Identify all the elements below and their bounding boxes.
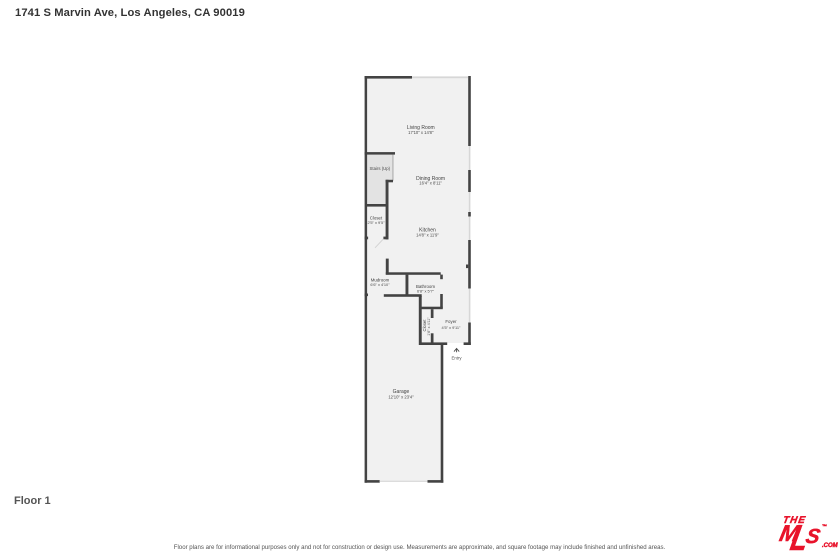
svg-text:14'8" x 11'9": 14'8" x 11'9"	[416, 233, 439, 238]
svg-text:16'4" x 8'11": 16'4" x 8'11"	[419, 180, 442, 185]
svg-text:2'5" x 9'5": 2'5" x 9'5"	[367, 220, 385, 225]
svg-text:17'10" x 14'8": 17'10" x 14'8"	[408, 130, 434, 135]
svg-text:1'6" x 4'11": 1'6" x 4'11"	[427, 317, 431, 336]
svg-text:Entry: Entry	[451, 356, 462, 361]
svg-text:4'5" x 9'11": 4'5" x 9'11"	[442, 325, 462, 330]
svg-text:Stairs (Up): Stairs (Up)	[370, 166, 391, 171]
svg-text:12'10" x 23'4": 12'10" x 23'4"	[388, 394, 414, 399]
svg-text:6'8" x 5'7": 6'8" x 5'7"	[417, 288, 435, 293]
svg-text:Foyer: Foyer	[445, 319, 457, 324]
svg-text:Closet: Closet	[422, 319, 427, 332]
svg-text:6'6" x 4'10": 6'6" x 4'10"	[370, 282, 390, 287]
